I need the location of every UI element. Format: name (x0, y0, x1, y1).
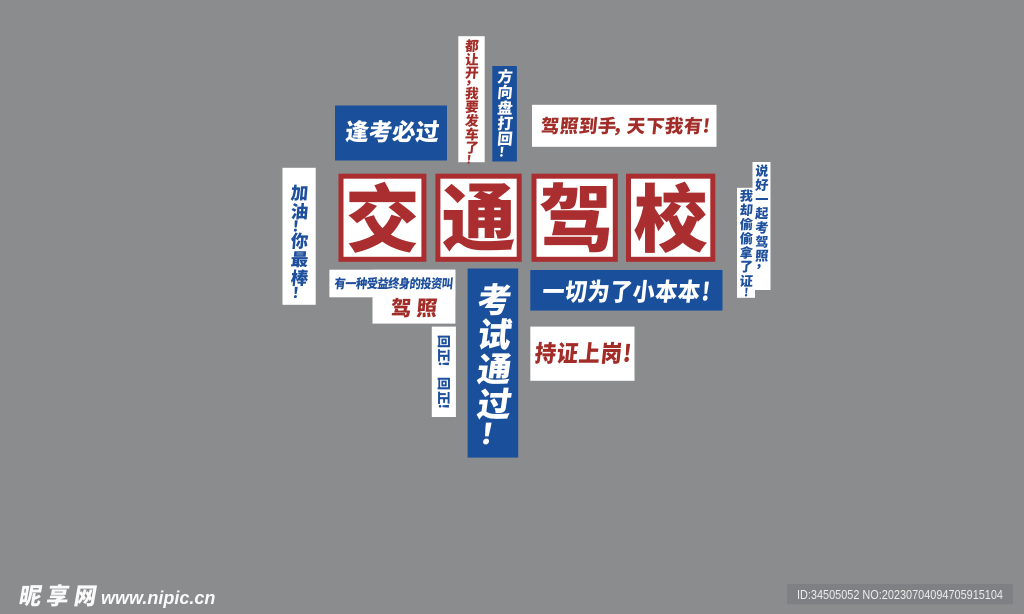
svg-text:ID:34505052 NO:202307040947059: ID:34505052 NO:20230704094705915104 (797, 588, 1003, 602)
svg-text:www.nipic.cn: www.nipic.cn (101, 588, 215, 608)
